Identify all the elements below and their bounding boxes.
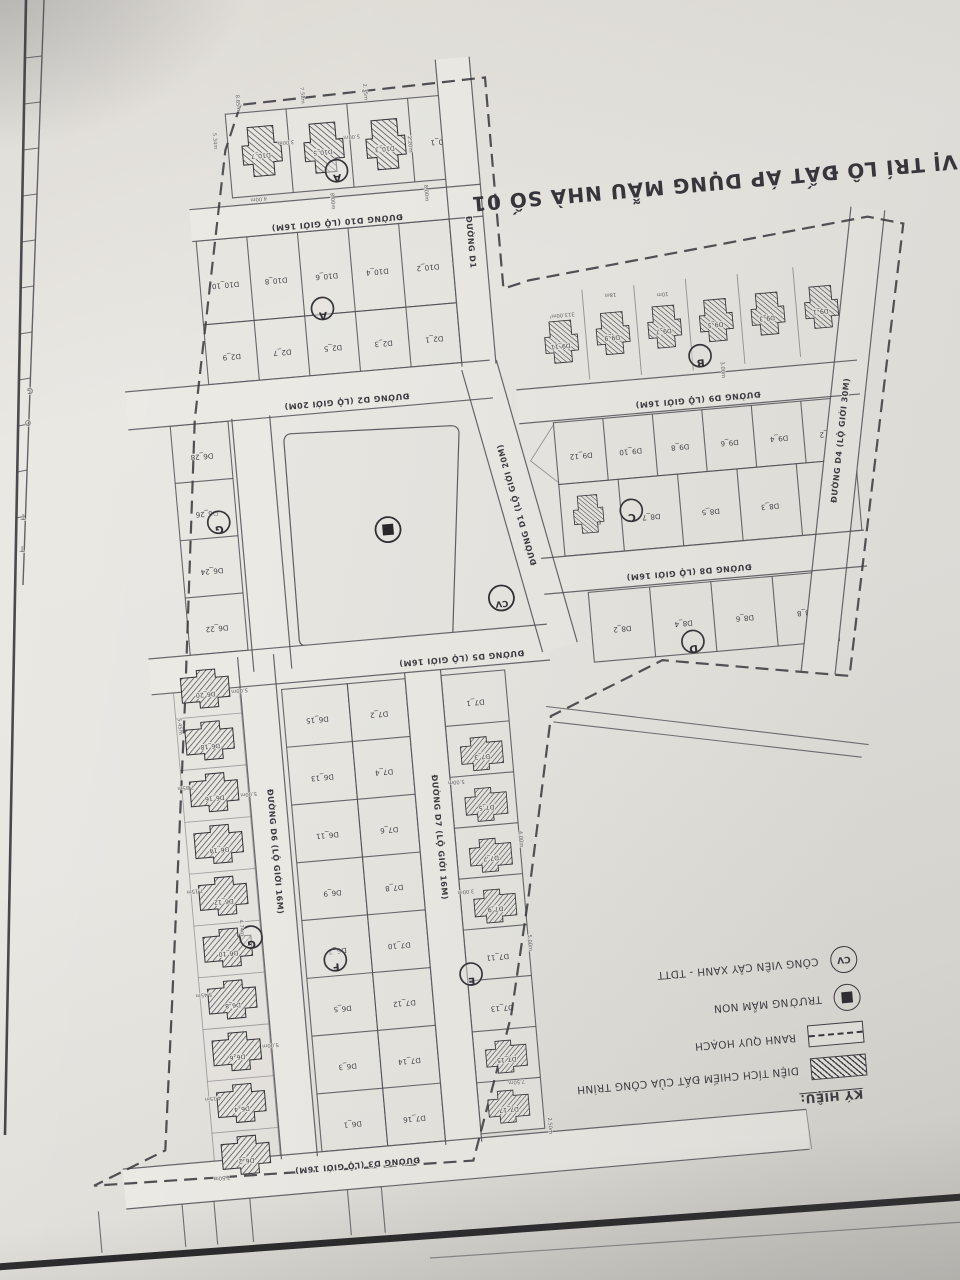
map-line bbox=[634, 285, 642, 375]
map-line bbox=[553, 695, 861, 783]
map-line bbox=[347, 1187, 388, 1268]
plot-D6_5: D6_5 bbox=[333, 1004, 352, 1015]
plot-D6_3: D6_3 bbox=[338, 1061, 357, 1072]
villa-D9_7 bbox=[646, 305, 682, 349]
villa-label-D6_8: D6_8 bbox=[225, 1001, 241, 1009]
villa-D9_1 bbox=[803, 285, 839, 329]
map-label: E bbox=[468, 975, 476, 988]
villa-label-D9_3: D9_3 bbox=[759, 314, 775, 322]
sheet-edge-line bbox=[5, 0, 26, 1135]
plot-D2_3: D2_3 bbox=[374, 338, 393, 349]
dim-label: 4.15m bbox=[204, 1094, 221, 1101]
plot-D7_8: D7_8 bbox=[384, 883, 403, 894]
villa-D9_5 bbox=[698, 298, 734, 342]
legend-label: DIỆN TÍCH CHIẾM ĐẤT CỦA CÔNG TRÌNH bbox=[576, 1064, 799, 1095]
table-rung bbox=[24, 102, 40, 104]
table-rung bbox=[21, 286, 34, 288]
park-icon: CV bbox=[829, 945, 858, 974]
map-line bbox=[182, 1204, 193, 1280]
plot-D8_6: D8_6 bbox=[735, 613, 754, 624]
plot-D2_7: D2_7 bbox=[273, 347, 292, 358]
sheet-letter: T bbox=[20, 512, 26, 521]
kindergarten-icon bbox=[832, 983, 861, 1012]
table-rung bbox=[22, 194, 37, 196]
map-line bbox=[793, 267, 801, 357]
dim-label: 7.15m bbox=[186, 887, 203, 894]
villa-D9_11 bbox=[543, 320, 579, 364]
dim-label: 7.58m bbox=[298, 87, 305, 104]
plot-D8_3: D8_3 bbox=[761, 501, 780, 512]
dashed-swatch-icon bbox=[807, 1021, 865, 1048]
villa-label-D9_7: D9_7 bbox=[656, 327, 672, 335]
table-rung bbox=[17, 470, 27, 472]
plot-D7_2: D7_2 bbox=[370, 709, 389, 720]
legend-label: TRƯỜNG MẦM NON bbox=[713, 994, 822, 1015]
villa-label-D7_3: D7_3 bbox=[474, 752, 490, 760]
villa-label-D6_6: D6_6 bbox=[229, 1053, 245, 1061]
map-line bbox=[546, 679, 869, 772]
villa-label-D6_2: D6_2 bbox=[238, 1156, 254, 1164]
sheet-letter: T bbox=[19, 544, 25, 553]
table-rung bbox=[23, 148, 38, 150]
plot-D2_1: D2_1 bbox=[425, 334, 444, 345]
dim-label: 313.00m² bbox=[549, 311, 575, 319]
villa-D9_3 bbox=[750, 292, 786, 336]
legend-label: RANH QUY HOẠCH bbox=[694, 1032, 796, 1053]
villa-label-D9_1: D9_1 bbox=[812, 307, 828, 315]
map-label: C bbox=[627, 511, 636, 524]
plot-D8_4: D8_4 bbox=[674, 618, 693, 629]
sheet-letter: O bbox=[25, 418, 31, 427]
villa-D9_9 bbox=[595, 311, 631, 355]
map-line bbox=[737, 274, 745, 364]
map-label: B bbox=[696, 356, 705, 369]
villa-label-D9_9: D9_9 bbox=[604, 333, 620, 341]
plot-D6_9: D6_9 bbox=[323, 888, 342, 899]
villa-label-D9_5: D9_5 bbox=[707, 320, 723, 328]
map-label: D bbox=[688, 642, 698, 655]
table-rung bbox=[20, 332, 32, 334]
dim-label: 7.85m bbox=[177, 783, 194, 790]
plot-D8_7: D8_7 bbox=[642, 512, 661, 523]
map-label: G bbox=[247, 938, 257, 951]
plot-D9_4: D9_4 bbox=[769, 433, 788, 444]
plot-D7_4: D7_4 bbox=[374, 767, 393, 778]
plot-D7_1: D7_1 bbox=[466, 697, 485, 708]
plot-D8_2: D8_2 bbox=[613, 624, 632, 635]
villa-label-D7_5: D7_5 bbox=[478, 803, 494, 811]
plot-D9_6: D9_6 bbox=[720, 438, 739, 449]
map-label: G bbox=[215, 523, 225, 536]
plot-D2_5: D2_5 bbox=[324, 343, 343, 354]
hatch-swatch-icon bbox=[810, 1053, 868, 1080]
dim-label: 8.85m bbox=[234, 95, 241, 112]
photographed-plan-sheet: text{font-family:"DejaVu Sans",sans-seri… bbox=[0, 0, 960, 1280]
table-rung bbox=[25, 56, 42, 58]
dim-label: 5.45m bbox=[195, 991, 212, 998]
plot-D7_6: D7_6 bbox=[379, 825, 398, 836]
map-line bbox=[214, 1198, 256, 1275]
plot-D9_8: D9_8 bbox=[670, 442, 689, 453]
map-line bbox=[98, 1211, 109, 1280]
dim-label: 5.34m bbox=[211, 133, 218, 150]
plot-D8_5: D8_5 bbox=[701, 507, 720, 518]
dim-label: 18m bbox=[604, 291, 616, 298]
legend: KÝ HIỆU: DIỆN TÍCH CHIẾM ĐẤT CỦA CÔNG TR… bbox=[526, 934, 869, 1129]
legend-label: CÔNG VIÊN CÂY XANH - TDTT bbox=[657, 956, 819, 982]
sheet-letter: G bbox=[27, 386, 33, 395]
table-rung bbox=[22, 240, 36, 242]
sheet-table-line bbox=[23, 0, 44, 585]
dim-label: 2.35m bbox=[361, 83, 368, 100]
table-rung bbox=[19, 378, 30, 380]
map-label: F bbox=[332, 960, 340, 973]
villa-label-D6_4: D6_4 bbox=[234, 1104, 250, 1112]
plot-D2_9: D2_9 bbox=[222, 352, 241, 363]
plot-D6_1: D6_1 bbox=[343, 1119, 362, 1130]
villa-label-D7_7: D7_7 bbox=[483, 854, 499, 862]
map-label: CV bbox=[495, 598, 509, 609]
map-line bbox=[582, 290, 590, 380]
dim-label: 10m bbox=[656, 290, 668, 297]
villa-label-D7_9: D7_9 bbox=[487, 905, 503, 913]
